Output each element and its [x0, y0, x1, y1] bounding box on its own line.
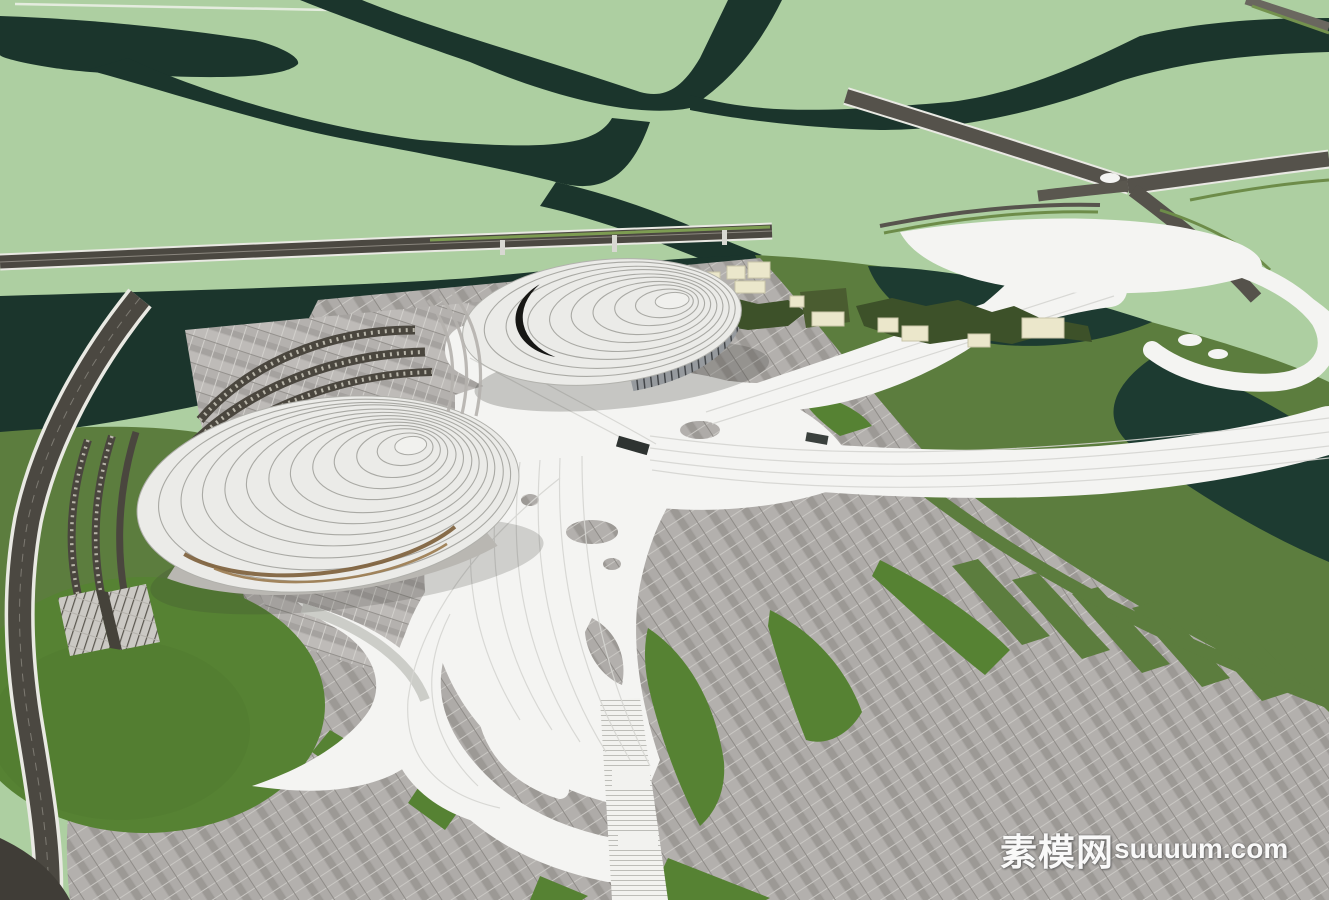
building-block [748, 262, 770, 278]
building-block [878, 318, 898, 332]
building-block [735, 281, 765, 293]
bridge-pier [612, 235, 617, 252]
bridge-pier [500, 240, 505, 255]
walkway-white-gap [612, 770, 650, 790]
building-block [812, 312, 844, 326]
building-block [727, 266, 745, 279]
architectural-rendering: 素模网suuuum.com [0, 0, 1329, 900]
bridge-pier [722, 230, 727, 245]
walkway-white-gap [618, 832, 658, 850]
ramp-dot [1100, 173, 1120, 183]
scene-canvas [0, 0, 1329, 900]
ramp-dot [1208, 349, 1228, 359]
building-block [1022, 318, 1064, 338]
building-block [790, 296, 804, 307]
ramp-dot [1178, 334, 1202, 346]
building-block [902, 326, 928, 341]
watermark: 素模网suuuum.com [1000, 822, 1288, 876]
building-block [968, 334, 990, 347]
watermark-cn-text: 素模网 [1000, 832, 1114, 873]
watermark-latin-text: suuuum.com [1114, 833, 1288, 864]
